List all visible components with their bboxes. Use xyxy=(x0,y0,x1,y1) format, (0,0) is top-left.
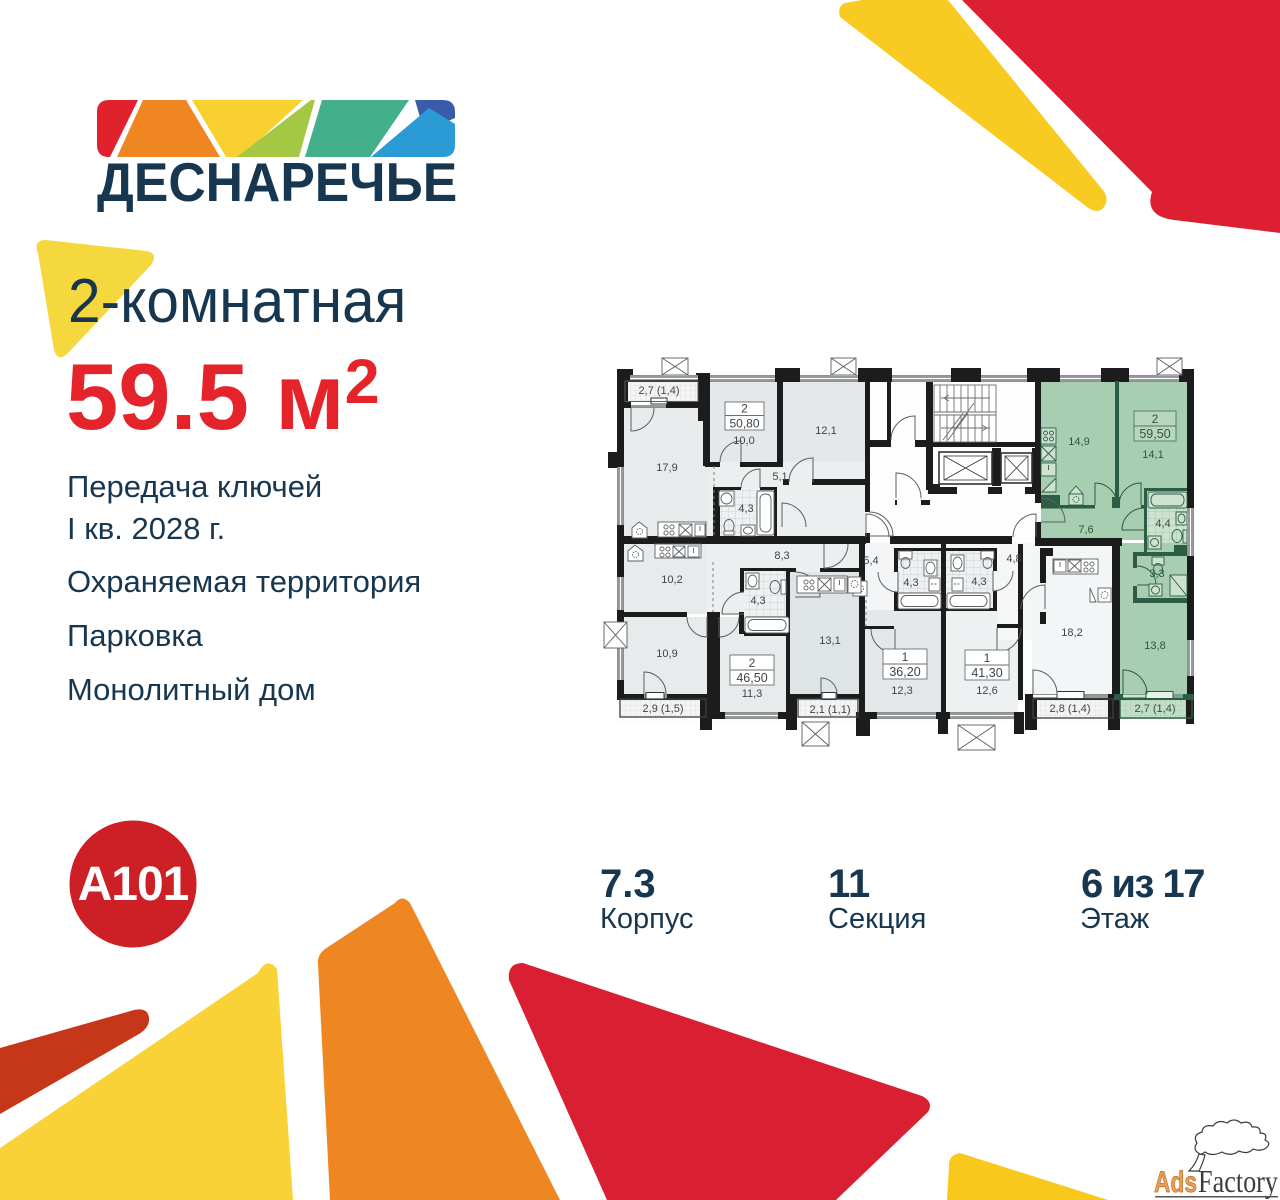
svg-text:17,9: 17,9 xyxy=(656,462,677,474)
svg-text:3,3: 3,3 xyxy=(1149,568,1164,580)
svg-text:46,50: 46,50 xyxy=(736,671,767,685)
svg-text:4,3: 4,3 xyxy=(903,577,918,589)
svg-text:10,2: 10,2 xyxy=(661,574,682,586)
svg-text:Ads: Ads xyxy=(1154,1166,1197,1199)
svg-text:1: 1 xyxy=(902,650,909,664)
svg-text:4,3: 4,3 xyxy=(738,503,753,515)
svg-text:36,20: 36,20 xyxy=(889,665,920,679)
svg-text:2,1 (1,1): 2,1 (1,1) xyxy=(810,704,851,716)
svg-text:2: 2 xyxy=(741,402,748,416)
svg-text:50,80: 50,80 xyxy=(729,417,759,431)
svg-text:2: 2 xyxy=(749,656,756,670)
svg-text:4,3: 4,3 xyxy=(971,576,986,588)
svg-text:10,0: 10,0 xyxy=(733,435,754,447)
svg-text:18,2: 18,2 xyxy=(1061,627,1082,639)
svg-text:2,8 (1,4): 2,8 (1,4) xyxy=(1050,703,1091,715)
svg-text:12,3: 12,3 xyxy=(891,685,912,697)
svg-text:13,8: 13,8 xyxy=(1144,640,1165,652)
svg-text:1: 1 xyxy=(984,651,991,665)
svg-text:2,7 (1,4): 2,7 (1,4) xyxy=(1135,703,1176,715)
svg-text:12,1: 12,1 xyxy=(815,425,836,437)
svg-text:4,3: 4,3 xyxy=(750,595,765,607)
svg-text:2,7 (1,4): 2,7 (1,4) xyxy=(639,385,680,397)
svg-text:5,4: 5,4 xyxy=(863,555,878,567)
svg-text:14,9: 14,9 xyxy=(1068,436,1089,448)
svg-text:A101: A101 xyxy=(78,858,189,911)
svg-text:7,6: 7,6 xyxy=(1078,524,1093,536)
svg-text:4,8: 4,8 xyxy=(1006,553,1021,565)
svg-text:59,50: 59,50 xyxy=(1139,427,1170,441)
svg-text:10,9: 10,9 xyxy=(656,648,677,660)
svg-text:11,3: 11,3 xyxy=(742,688,763,700)
svg-text:2: 2 xyxy=(1152,412,1159,426)
svg-text:41,30: 41,30 xyxy=(971,666,1002,680)
svg-text:12,6: 12,6 xyxy=(976,685,997,697)
svg-text:14,1: 14,1 xyxy=(1142,449,1163,461)
svg-text:13,1: 13,1 xyxy=(819,635,840,647)
svg-text:2,9 (1,5): 2,9 (1,5) xyxy=(643,703,684,715)
svg-text:8,3: 8,3 xyxy=(774,550,789,562)
svg-text:4,4: 4,4 xyxy=(1155,518,1170,530)
svg-text:Factory: Factory xyxy=(1198,1163,1278,1199)
svg-text:5,1: 5,1 xyxy=(772,471,787,483)
